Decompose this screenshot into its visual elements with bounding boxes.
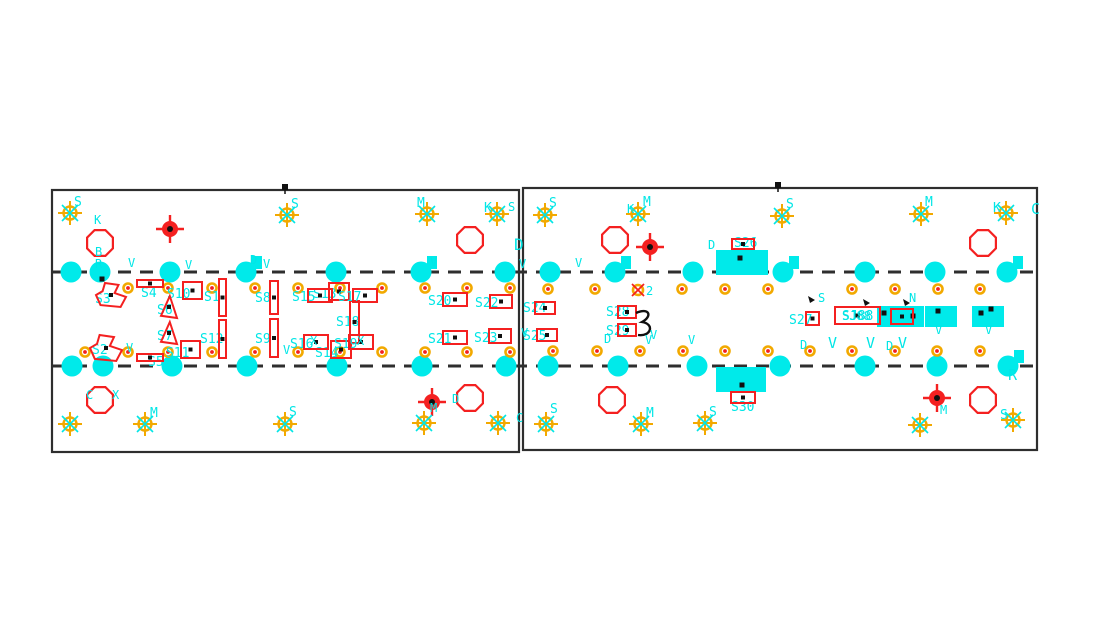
hole-marker (608, 356, 629, 377)
target-label: S (289, 405, 297, 420)
target-label: M (646, 406, 654, 421)
starred-pad-label: 2 (646, 284, 653, 298)
pad-center (935, 349, 939, 353)
pin1-dot (167, 331, 171, 335)
fiducial-center (934, 395, 940, 401)
letter-annotation: X (357, 334, 365, 348)
letter-annotation: V (688, 333, 695, 347)
pad-center (465, 350, 469, 354)
letter-annotation: V (128, 256, 135, 270)
refdes-label: S1 (204, 290, 220, 305)
target-label: M (643, 195, 651, 210)
hole-marker (538, 356, 559, 377)
fiducial-center (167, 226, 173, 232)
letter-annotation: V (519, 257, 526, 271)
letter-annotation: V (898, 334, 907, 352)
pin1-dot (453, 298, 457, 302)
pin1-dot (989, 307, 994, 312)
pin1-dot (900, 315, 904, 319)
hole-marker (683, 262, 704, 283)
pad-center (253, 350, 257, 354)
letter-annotation: M (940, 403, 947, 417)
letter-annotation: D (452, 392, 459, 406)
pin1-dot (272, 296, 276, 300)
drawing-viewport: SSMKSMSMKMSSMSS2S3S2S4S5S10S11S6S7S1S12S… (0, 0, 1099, 631)
letter-annotation: V (126, 341, 133, 355)
letter-annotation: C (86, 388, 93, 402)
fiducial-center (647, 244, 653, 250)
pad-center (766, 349, 770, 353)
pad-center (723, 287, 727, 291)
pad-center (380, 286, 384, 290)
target-label: S (291, 197, 299, 212)
pad-center (893, 349, 897, 353)
hole-marker (605, 262, 626, 283)
pin1-dot (625, 310, 629, 314)
letter-annotation: N (909, 291, 916, 305)
letter-annotation: V (430, 255, 437, 269)
pad-center (83, 350, 87, 354)
letter-annotation: V (935, 323, 942, 337)
letter-annotation: C (1031, 200, 1040, 218)
letter-annotation: D (604, 332, 611, 346)
pin1-dot (936, 309, 941, 314)
pin1-dot (363, 294, 367, 298)
letter-annotation: K (94, 213, 102, 227)
panel-outline (523, 188, 1037, 450)
target-label: S (786, 197, 794, 212)
letter-annotation: V (645, 333, 652, 347)
pad-center (210, 350, 214, 354)
pin1-dot (741, 396, 745, 400)
refdes-label: S8 (255, 291, 271, 306)
pad-center (893, 287, 897, 291)
letter-annotation: X (112, 388, 120, 402)
hole-marker (495, 262, 516, 283)
letter-annotation: S (818, 291, 825, 305)
letter-annotation: V (828, 334, 837, 352)
pad-center (508, 286, 512, 290)
pin1-dot (738, 256, 743, 261)
pin1-dot (221, 337, 225, 341)
pin1-dot (543, 306, 547, 310)
letter-annotation: D (514, 235, 524, 254)
pin1-dot (148, 356, 152, 360)
cyan-component (716, 367, 766, 392)
pin1-dot (353, 320, 357, 324)
target-label: S (549, 196, 557, 211)
pad-center (595, 349, 599, 353)
letter-annotation: V (866, 334, 875, 352)
letter-annotation: C (516, 411, 523, 425)
pad-center (723, 349, 727, 353)
pad-center (546, 287, 550, 291)
letter-annotation: V (283, 343, 290, 357)
hole-marker (326, 262, 347, 283)
hole-marker (773, 262, 794, 283)
target-label: S (1000, 408, 1008, 423)
datum-mark (775, 182, 781, 188)
hole-marker (412, 356, 433, 377)
hole-marker (927, 356, 948, 377)
refdes-label: S4 (141, 286, 157, 301)
pin1-dot (882, 311, 887, 316)
pin1-dot (811, 317, 815, 321)
pad-center (508, 350, 512, 354)
letter-annotation: V (185, 258, 192, 272)
refdes-label: S9 (255, 332, 271, 347)
hole-marker (540, 262, 561, 283)
hole-marker (62, 356, 83, 377)
hole-marker (496, 356, 517, 377)
hole-marker (237, 356, 258, 377)
letter-annotation: V (521, 326, 528, 340)
pin1-dot (453, 336, 457, 340)
datum-mark (282, 184, 288, 190)
hole-marker (997, 262, 1018, 283)
jumper-label: SJ88 (842, 309, 871, 323)
letter-annotation: V (985, 323, 992, 337)
target-label: K (993, 201, 1001, 216)
pad-center (126, 286, 130, 290)
hole-marker (61, 262, 82, 283)
pin1-dot (221, 296, 225, 300)
hole-marker (411, 262, 432, 283)
pin1-dot (979, 311, 984, 316)
hole-marker (687, 356, 708, 377)
pin1-dot (740, 383, 745, 388)
hole-marker (855, 356, 876, 377)
pin1-dot (545, 333, 549, 337)
letter-annotation: R (95, 257, 103, 271)
pad-center (423, 350, 427, 354)
pin1-dot (499, 300, 503, 304)
letter-annotation: V (575, 256, 582, 270)
pad-center (380, 350, 384, 354)
pad-center (638, 349, 642, 353)
letter-annotation: K (627, 202, 635, 216)
pad-center (978, 349, 982, 353)
letter-annotation: R (1008, 366, 1018, 384)
target-label: M (150, 406, 158, 421)
pin1-dot (191, 289, 195, 293)
pin1-dot (189, 348, 193, 352)
hole-marker (855, 262, 876, 283)
letter-annotation: S (508, 200, 515, 214)
letter-annotation: X (310, 334, 318, 348)
pin1-dot (625, 328, 629, 332)
pad-center (551, 349, 555, 353)
letter-annotation: D (800, 338, 807, 352)
pad-center (766, 287, 770, 291)
pin1-dot (109, 293, 113, 297)
pad-center (850, 349, 854, 353)
hole-dot (100, 277, 105, 282)
pad-center (681, 349, 685, 353)
letter-annotation: V (263, 257, 270, 271)
hole-marker (770, 356, 791, 377)
pin1-dot (272, 336, 276, 340)
pad-center (593, 287, 597, 291)
pad-center (978, 287, 982, 291)
letter-annotation: D (708, 238, 715, 252)
pad-center (936, 287, 940, 291)
pin1-dot (318, 294, 322, 298)
target-label: K (484, 201, 492, 216)
pin1-dot (741, 242, 745, 246)
letter-annotation: D (250, 253, 257, 267)
pin1-dot (148, 282, 152, 286)
target-label: S (550, 402, 558, 417)
pad-center (808, 349, 812, 353)
cad-canvas[interactable]: SSMKSMSMKMSSMSS2S3S2S4S5S10S11S6S7S1S12S… (0, 0, 1099, 631)
pad-center (253, 286, 257, 290)
letter-annotation: D (886, 339, 893, 353)
target-label: S (74, 195, 82, 210)
target-label: M (417, 196, 425, 211)
hole-marker (925, 262, 946, 283)
pad-center (680, 287, 684, 291)
letter-annotation: M (430, 401, 437, 415)
pad-center (850, 287, 854, 291)
pad-center (465, 286, 469, 290)
pad-center (423, 286, 427, 290)
pin1-dot (498, 334, 502, 338)
pin1-dot (167, 305, 171, 309)
cyan-component (716, 250, 768, 275)
pin1-dot (104, 346, 108, 350)
target-label: S (709, 405, 717, 420)
target-label: M (925, 195, 933, 210)
